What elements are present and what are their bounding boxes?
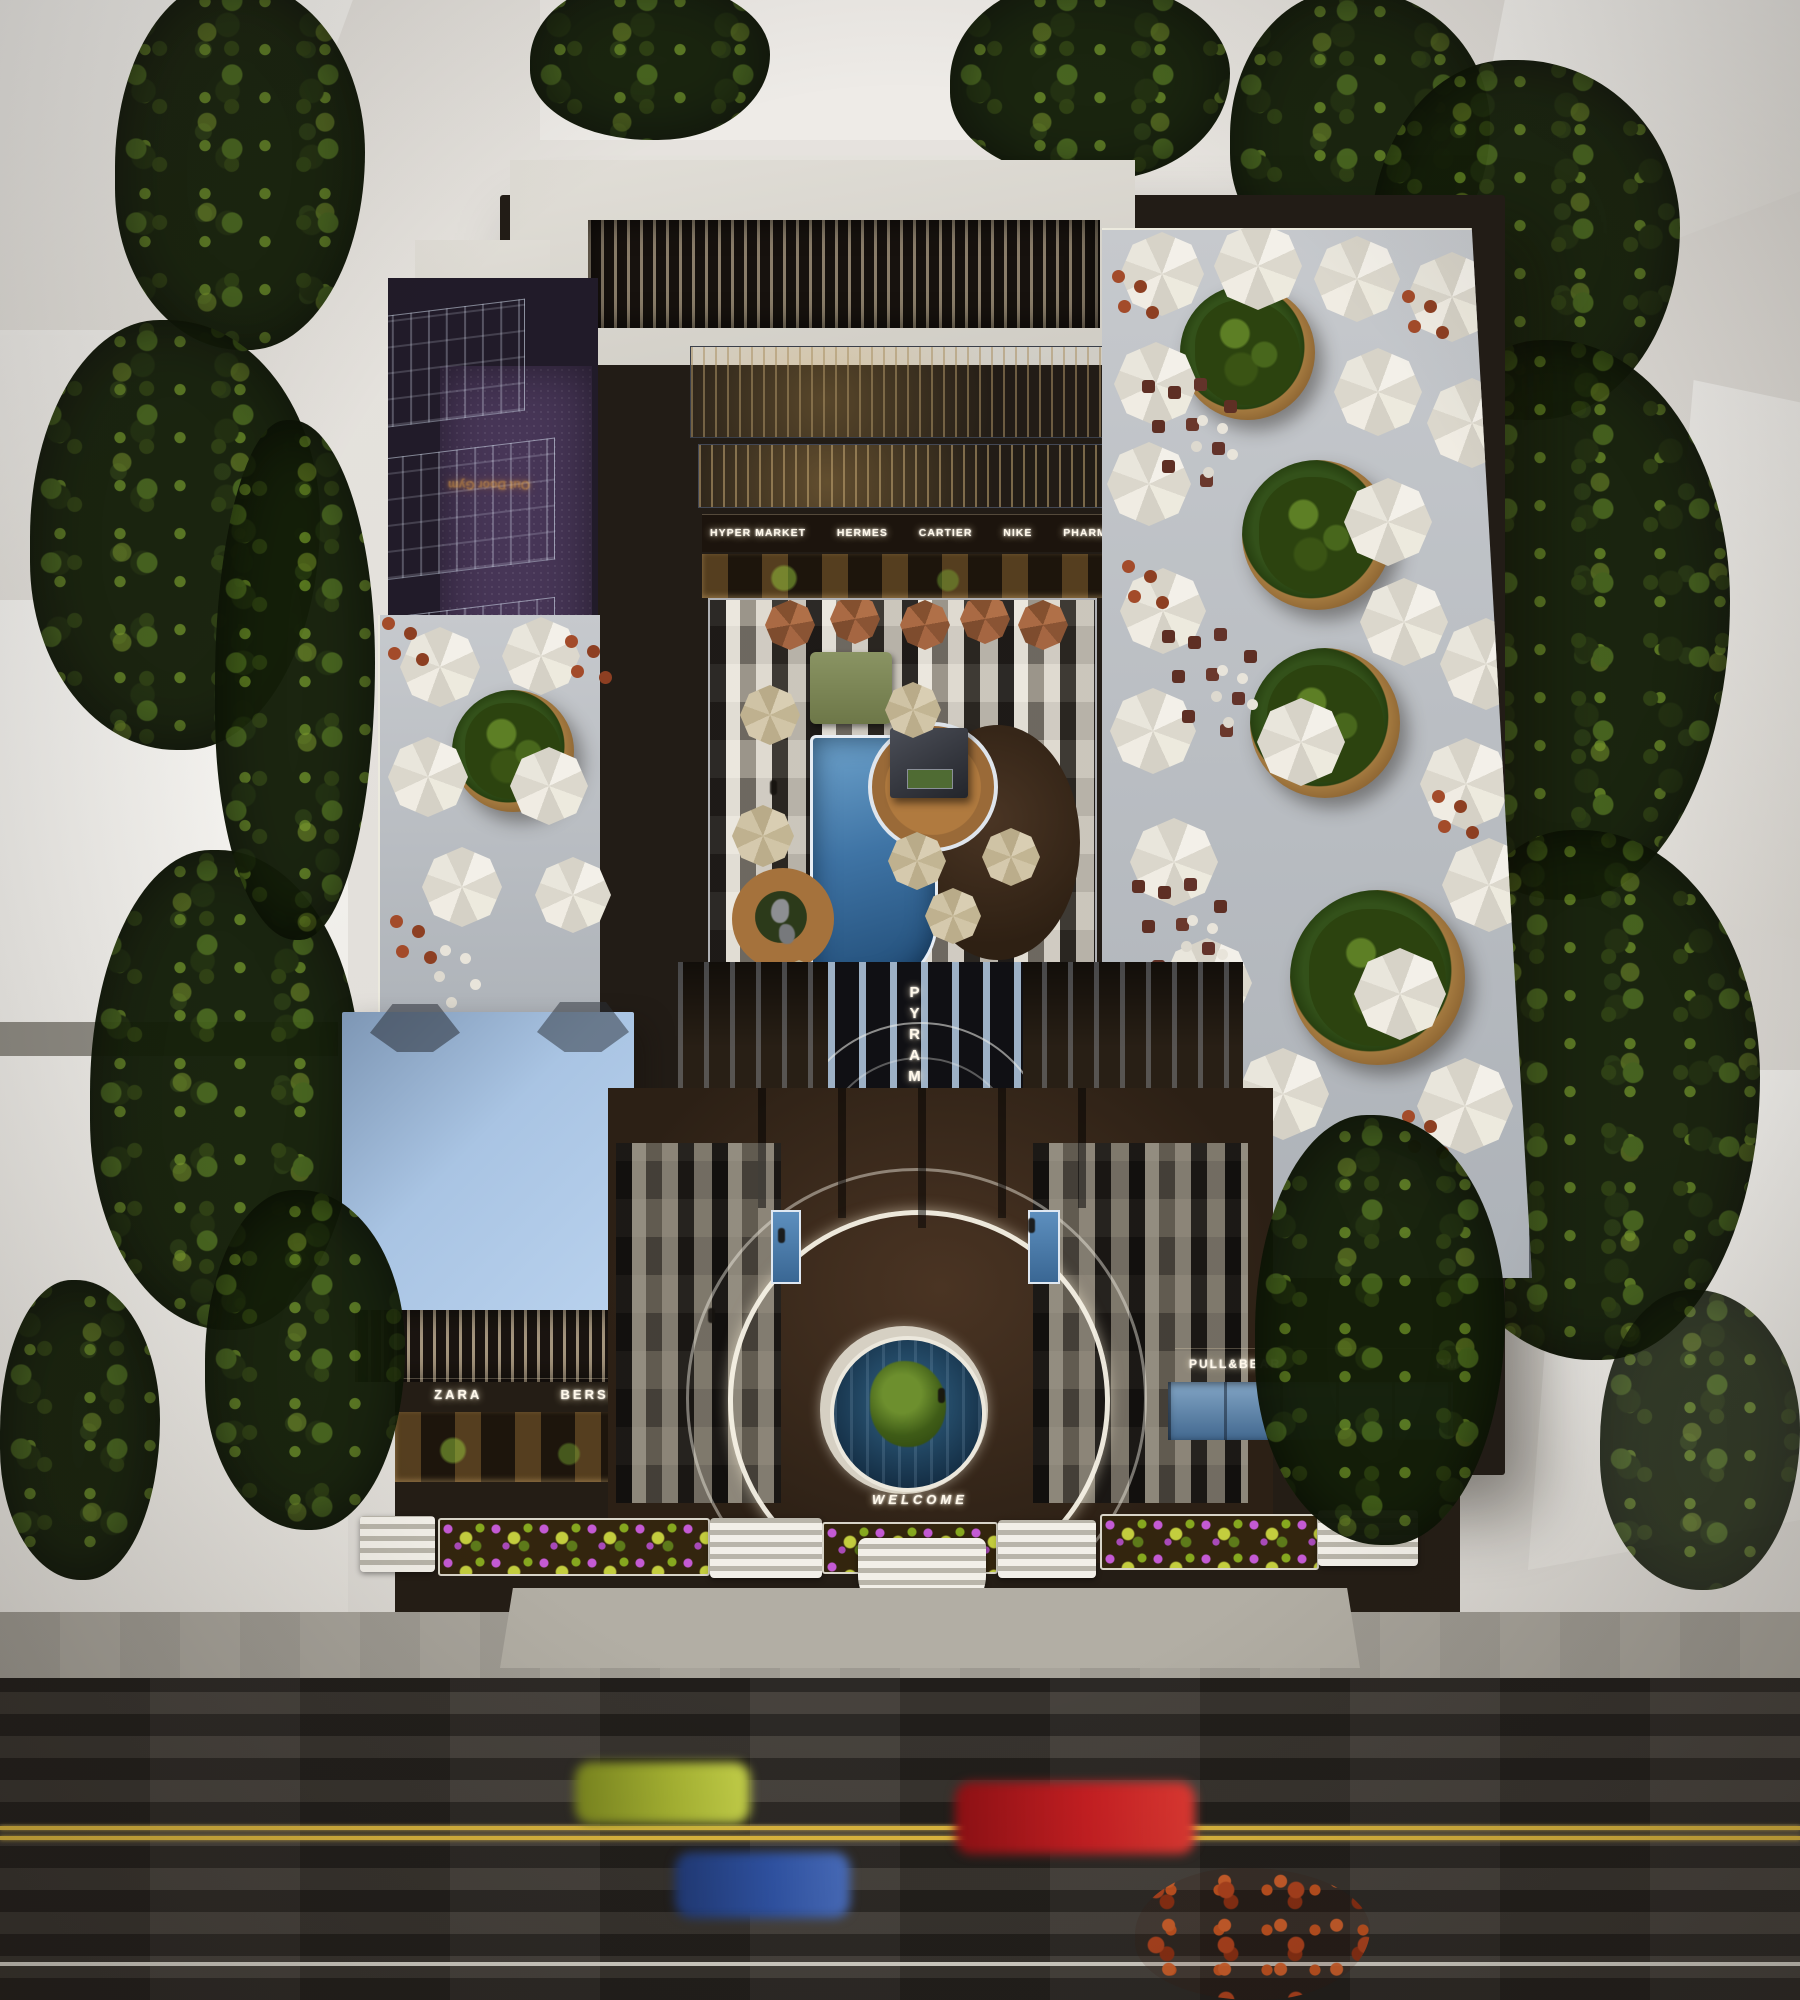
courtyard-green-lounge	[810, 652, 892, 724]
sign-hyper-market: HYPER MARKET	[710, 527, 806, 539]
column-shadow	[758, 1088, 766, 1208]
terrace-chairs-white	[1187, 915, 1198, 926]
terrace-seating-group	[1142, 380, 1155, 393]
tree-cluster	[1600, 1290, 1800, 1590]
cafe-umbrella-tan	[740, 685, 800, 745]
terrace-umbrella	[1360, 578, 1448, 666]
car-blue	[675, 1852, 850, 1918]
terrace-umbrella	[510, 747, 588, 825]
terrace-umbrella	[1107, 442, 1191, 526]
terrace-seating-group	[1162, 630, 1175, 643]
cafe-umbrella-tan	[925, 888, 981, 944]
rooftop-terrace-left	[378, 615, 600, 1045]
person	[938, 1388, 945, 1403]
glass-pergola-canopy	[388, 299, 525, 430]
flower-bed	[1100, 1514, 1319, 1570]
cafe-umbrella-tan	[888, 832, 946, 890]
terrace-umbrella	[1120, 232, 1204, 316]
terrace-umbrella	[400, 627, 480, 707]
column-shadow	[918, 1088, 926, 1228]
lane-marking-yellow-2	[0, 1836, 1800, 1840]
terracotta-pots	[1122, 560, 1135, 573]
tree-cluster	[115, 0, 365, 350]
terrace-umbrella	[388, 737, 468, 817]
terracotta-pots	[1112, 270, 1125, 283]
car-yellow-green	[575, 1762, 750, 1824]
reflecting-pool-left	[771, 1210, 801, 1284]
cafe-umbrella-tan	[885, 682, 941, 738]
flower-bed	[438, 1518, 710, 1576]
kiosk-roof	[890, 728, 968, 798]
terrace-umbrella	[1420, 738, 1512, 830]
terrace-umbrella	[422, 847, 502, 927]
column-shadow	[1078, 1088, 1086, 1208]
tree-cluster	[215, 420, 375, 940]
swan-sculpture	[771, 899, 789, 923]
cafe-umbrella-tan	[732, 805, 794, 867]
tree-cluster	[1255, 1115, 1505, 1545]
sculpture-platform	[732, 868, 834, 970]
sign-hermes: HERMES	[837, 527, 888, 539]
swan-sculpture	[779, 924, 795, 944]
kiosk-skylight-slot	[907, 769, 953, 789]
lane-marking-yellow-1	[0, 1826, 1800, 1830]
terracotta-pots	[565, 635, 578, 648]
cafe-umbrella-copper	[900, 600, 950, 650]
terracotta-pots	[1432, 790, 1445, 803]
person	[778, 1228, 785, 1243]
sign-nike: NIKE	[1003, 527, 1032, 539]
cafe-umbrella-copper	[1018, 600, 1068, 650]
welcome-sign: WELCOME	[872, 1492, 968, 1507]
inner-storefront-glass	[702, 554, 1112, 598]
umbrella-shadow	[370, 1004, 460, 1052]
front-apron	[500, 1588, 1360, 1668]
entry-side-ledge	[360, 1516, 435, 1572]
aerial-render-scene: Out Door Gym HYPER MARKET HERMES CARTIER…	[0, 0, 1800, 2000]
terracotta-pots	[382, 617, 395, 630]
terrace-umbrella	[1130, 818, 1218, 906]
autumn-tree-red	[1135, 1868, 1370, 2000]
terrace-chairs-white	[1197, 415, 1208, 426]
column-shadow	[838, 1088, 846, 1218]
terrace-chairs-white	[1217, 665, 1228, 676]
tree-cluster	[0, 1280, 160, 1580]
center-pool	[830, 1336, 986, 1492]
column-shadow	[998, 1088, 1006, 1218]
terrace-umbrella	[1110, 688, 1196, 774]
entry-steps-left	[710, 1518, 822, 1578]
glass-pergola-canopy	[388, 437, 555, 580]
pool-island-tree	[870, 1361, 947, 1447]
terrace-umbrella	[1314, 236, 1400, 322]
terracotta-pots	[390, 915, 403, 928]
atrium-skylight-upper	[690, 346, 1137, 438]
terrace-chairs-white	[440, 945, 451, 956]
terrace-umbrella	[535, 857, 611, 933]
person	[708, 1308, 715, 1323]
terrace-umbrella	[1334, 348, 1422, 436]
cafe-umbrella-copper	[830, 600, 880, 644]
person	[770, 780, 777, 795]
sign-cartier: CARTIER	[919, 527, 973, 539]
lane-marking-white	[0, 1962, 1800, 1966]
roof-louver-band	[588, 220, 1100, 328]
entry-steps-right	[998, 1520, 1096, 1578]
person	[1028, 1218, 1035, 1233]
terrace-umbrella	[1354, 948, 1446, 1040]
terrace-seating-group	[1132, 880, 1145, 893]
tree-cluster	[950, 0, 1230, 180]
inner-storefront-signband: HYPER MARKET HERMES CARTIER NIKE PHARMAC…	[702, 514, 1140, 552]
terrace-umbrella	[502, 617, 580, 695]
atrium-skylight-lower	[698, 444, 1128, 508]
outdoor-gym-sign-reflection: Out Door Gym	[448, 478, 530, 492]
terrace-umbrella	[1440, 618, 1532, 710]
terracotta-pots	[1402, 290, 1415, 303]
tree-cluster	[205, 1190, 405, 1530]
sign-zara: ZARA	[434, 1387, 482, 1402]
car-red	[955, 1782, 1195, 1854]
cafe-umbrella-copper	[960, 600, 1010, 644]
cafe-umbrella-copper	[765, 600, 815, 650]
